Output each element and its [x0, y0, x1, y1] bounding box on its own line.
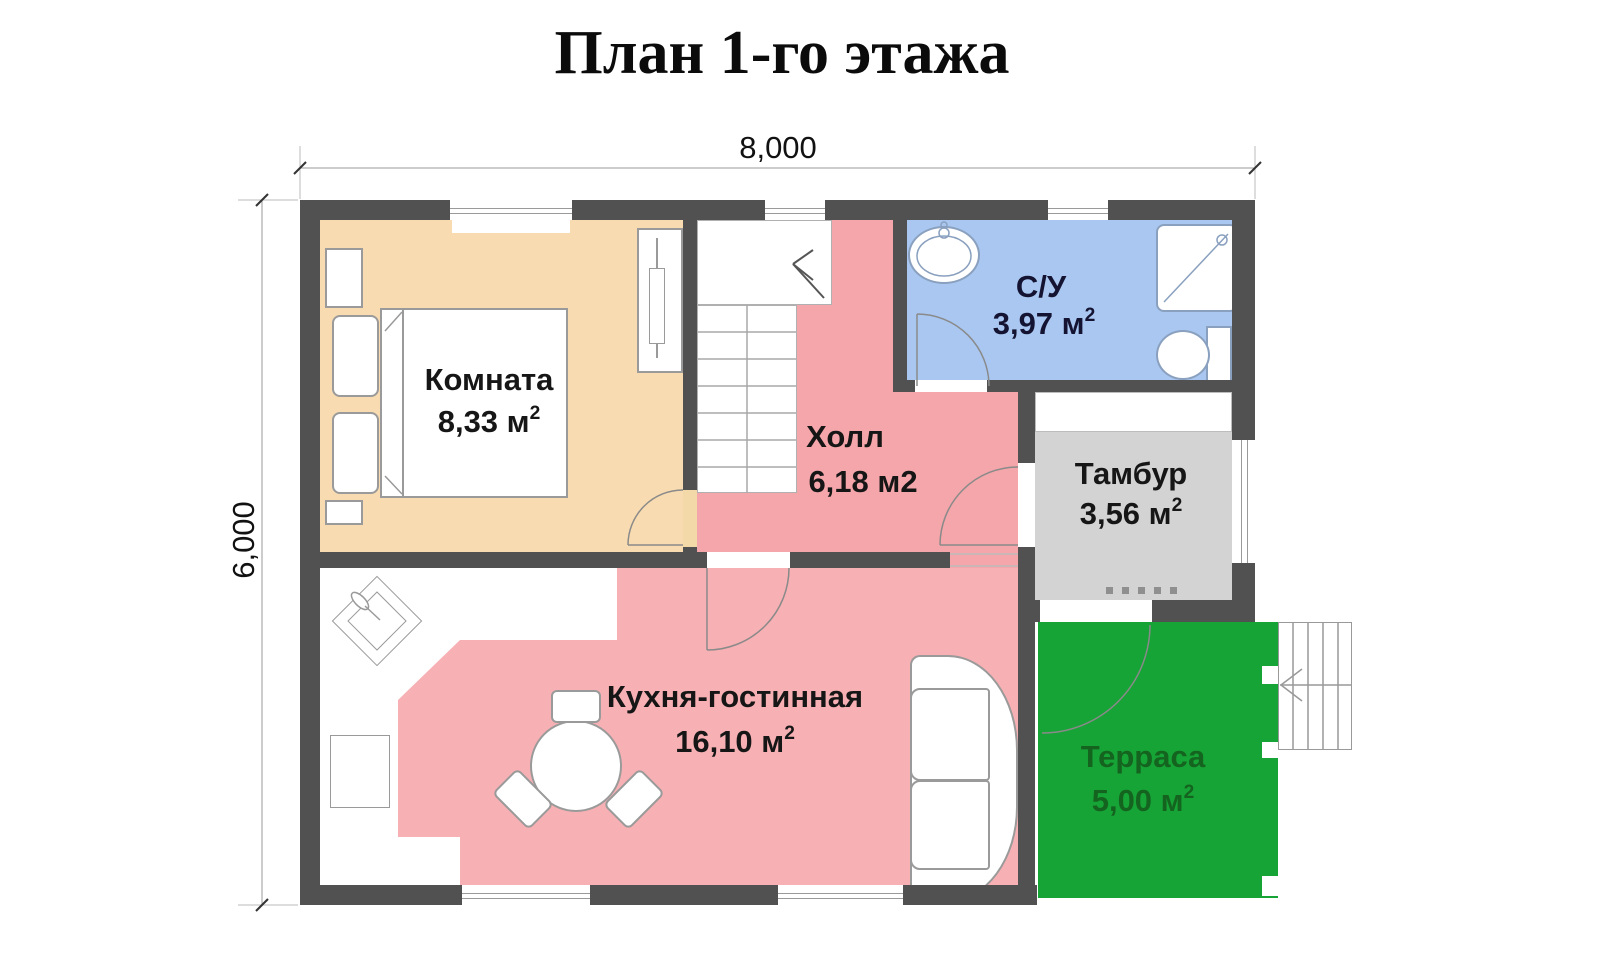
kitchen-name: Кухня-гостинная [607, 679, 863, 714]
dimension-height-label: 6,000 [226, 501, 262, 579]
hall-area: 6,18 м2 [808, 464, 917, 499]
toilet-bowl [1156, 330, 1210, 380]
dimension-width-label: 8,000 [739, 130, 817, 166]
shower-cabin [1156, 224, 1238, 312]
window-top-1 [450, 200, 572, 220]
page-title: План 1-го этажа [555, 18, 1010, 89]
bed-pillow-1 [332, 315, 379, 397]
kitchen-door-opening [707, 552, 790, 568]
wall-bedroom-right [683, 220, 697, 490]
hall-floor-mid [797, 305, 893, 393]
chair-top [551, 690, 601, 723]
bedroom-wardrobe-bottom [325, 500, 363, 525]
bathroom-area: 3,97 м [993, 306, 1085, 341]
bathroom-name: С/У [1016, 269, 1066, 304]
bedroom-window-recess [452, 220, 570, 233]
radiator-body [649, 268, 665, 344]
terrace-door-opening [1040, 600, 1152, 622]
stair-landing [697, 220, 832, 305]
terrace-area: 5,00 м [1092, 783, 1184, 818]
bed-headboard-line [402, 308, 404, 498]
hall-kitchen-passage [950, 552, 1018, 568]
kitchen-area: 16,10 м [675, 724, 784, 759]
bedroom-area-sup: 2 [530, 403, 541, 424]
bedroom-area-label: 8,33 м2 [438, 404, 541, 440]
kitchen-area-label: 16,10 м2 [675, 724, 795, 760]
terrace-post-notch-1 [1262, 666, 1278, 684]
bedroom-name: Комната [425, 362, 554, 397]
terrace-post-notch-2 [1262, 742, 1278, 758]
bedroom-area: 8,33 м [438, 404, 530, 439]
window-top-2 [765, 200, 825, 220]
window-bottom-2 [778, 885, 903, 905]
terrace-post-notch-3 [1262, 876, 1278, 896]
tambour-area-label: 3,56 м2 [1080, 496, 1183, 532]
bathroom-door-opening [915, 380, 987, 392]
tambour-name: Тамбур [1075, 456, 1187, 491]
wall-bedroom-bottom [300, 552, 707, 568]
sink-bowl [908, 226, 980, 284]
bedroom-door-opening [683, 490, 697, 547]
tambour-name-label: Тамбур [1075, 456, 1187, 492]
kitchen-appliance [330, 735, 390, 808]
bathroom-area-sup: 2 [1085, 305, 1096, 326]
terrace-name: Терраса [1081, 739, 1206, 774]
tambour-closet [1035, 392, 1232, 432]
wall-hall-bottom [790, 552, 950, 568]
tambour-grate-dot [1122, 587, 1129, 594]
bedroom-wardrobe-top [325, 248, 363, 308]
terrace-area-sup: 2 [1184, 782, 1195, 803]
tambour-grate-dot [1154, 587, 1161, 594]
hall-area-label: 6,18 м2 [808, 464, 917, 500]
tambour-grate-dot [1138, 587, 1145, 594]
window-bottom-1 [462, 885, 590, 905]
tambour-area: 3,56 м [1080, 496, 1172, 531]
hall-name: Холл [806, 419, 884, 454]
sofa-seat-2 [910, 780, 990, 870]
floor-plan-canvas: План 1-го этажа 8,000 6,000 [0, 0, 1600, 962]
tambour-grate-dot [1106, 587, 1113, 594]
bathroom-name-label: С/У [1016, 269, 1066, 305]
sofa-seat-1 [910, 688, 990, 781]
tambour-area-sup: 2 [1172, 495, 1183, 516]
wall-exterior-bottom [300, 885, 1037, 905]
entrance-stairs [1278, 622, 1352, 750]
terrace-name-label: Терраса [1081, 739, 1206, 775]
bedroom-name-label: Комната [425, 362, 554, 398]
window-right-tambour [1232, 440, 1255, 563]
kitchen-area-sup: 2 [784, 723, 795, 744]
hall-name-label: Холл [806, 419, 884, 455]
window-top-3 [1048, 200, 1108, 220]
wall-bathroom-left [893, 220, 907, 392]
bed-pillow-2 [332, 412, 379, 494]
tambour-grate-dot [1170, 587, 1177, 594]
hall-floor-top [832, 220, 893, 306]
tambour-door-opening [1018, 463, 1035, 547]
stair-flight [697, 305, 797, 493]
bathroom-area-label: 3,97 м2 [993, 306, 1096, 342]
terrace-area-label: 5,00 м2 [1092, 783, 1195, 819]
kitchen-name-label: Кухня-гостинная [607, 679, 863, 715]
